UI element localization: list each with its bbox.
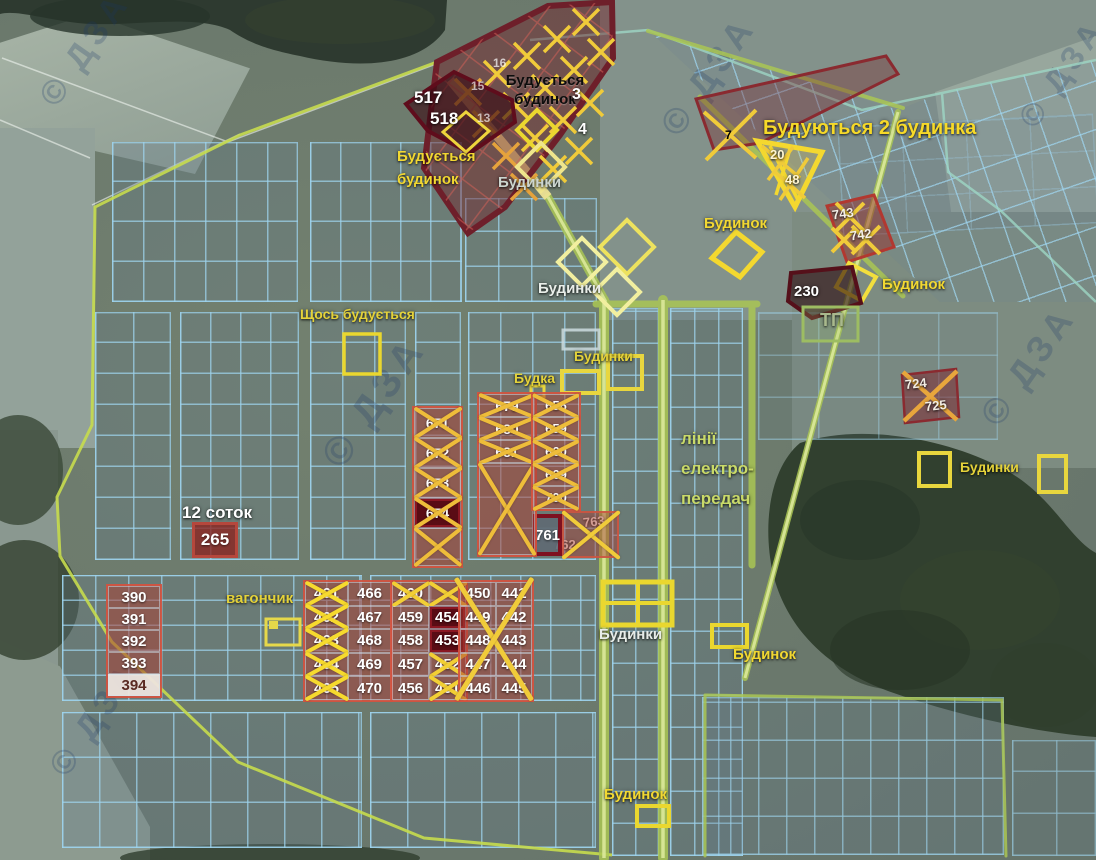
label-plot-724: 724 (904, 375, 927, 393)
label-517: 517 (414, 88, 442, 108)
plot-cell: 462 (305, 606, 348, 630)
plot-cell: 394 (108, 674, 160, 696)
label-budynky-top: Будинки (498, 174, 561, 192)
label-12-sotok: 12 соток (182, 503, 252, 523)
plot-cell: 456 (392, 676, 429, 700)
label-shchos-buduetsya: Щось будується (300, 306, 415, 323)
plot-cell: 669 (533, 463, 579, 486)
plot-761: 761 (533, 514, 562, 556)
plot-cell: 465 (305, 676, 348, 700)
label-budynok-mid: Будинок (733, 646, 796, 664)
plot-cell: 458 (392, 629, 429, 653)
label-plot-13: 13 (477, 111, 490, 125)
plot-cell: 681 (479, 440, 535, 463)
plot-cell: 466 (348, 582, 391, 606)
label-vagonchyk: вагончик (226, 590, 293, 608)
label-plot-48: 48 (785, 172, 799, 188)
x-over-441-450 (456, 578, 532, 700)
label-buduetsya-budynok-yellow: Будується будинок (397, 146, 476, 191)
plot-cell: 672 (414, 438, 461, 468)
label-budynky-mid: Будинки (574, 348, 633, 365)
label-budynky-diamonds: Будинки (538, 280, 601, 298)
plot-cell: 469 (348, 653, 391, 677)
label-budynok-bottom: Будинок (604, 786, 667, 804)
plot-cell: 467 (348, 606, 391, 630)
plots-671-674: 671672673674 (412, 406, 463, 568)
label-plot-15: 15 (471, 79, 484, 93)
plots-679-681: 679680681 (477, 392, 537, 557)
label-budynok-ne: Будинок (704, 215, 767, 233)
plots-461-470: 461466462467463468464469465470 (303, 580, 393, 702)
annotation-layer: Будується будинок517518Будується будинок… (0, 0, 1096, 860)
plot-cell: 393 (108, 652, 160, 674)
plot-265: 265 (192, 522, 238, 558)
label-plot-743: 743 (831, 205, 855, 223)
plot-cell (414, 528, 461, 566)
label-plot-4: 4 (578, 120, 587, 139)
label-budynok-ne2: Будинок (882, 276, 945, 294)
plot-cell: 464 (305, 653, 348, 677)
label-budka: Будка (514, 370, 555, 387)
plot-cell: 457 (392, 653, 429, 677)
label-plot-20: 20 (770, 147, 784, 163)
label-plot-742: 742 (849, 226, 873, 244)
plot-cell: 463 (305, 629, 348, 653)
plot-cell: 390 (108, 586, 160, 608)
plot-cell: 700 (533, 486, 579, 509)
plot-cell: 679 (479, 394, 535, 417)
plot-cell: 673 (414, 468, 461, 498)
plot-cell (479, 463, 535, 555)
plot-cell: 659 (533, 417, 579, 440)
plot-cell: 680 (479, 417, 535, 440)
label-plot-7: 7 (725, 128, 732, 142)
x-over-762-763 (562, 511, 619, 558)
plots-656-700: 656659660669700 (531, 392, 581, 511)
label-plot-230: 230 (794, 283, 819, 301)
label-tp: ТП (820, 310, 844, 332)
label-plot-3: 3 (572, 85, 581, 104)
plot-cell: 470 (348, 676, 391, 700)
plots-390-394: 390391392393394 (106, 584, 162, 698)
label-plot-725: 725 (924, 397, 947, 415)
plot-cell: 391 (108, 608, 160, 630)
map-image: © ДЗА © ДЗА © ДЗА © ДЗА © ДЗА © ДЗА (0, 0, 1096, 860)
label-power-lines: лінії електро- передач (681, 424, 754, 513)
plot-cell: 671 (414, 408, 461, 438)
label-518: 518 (430, 109, 458, 129)
plot-cell: 468 (348, 629, 391, 653)
plot-cell: 656 (533, 394, 579, 417)
plot-cell: 459 (392, 606, 429, 630)
plot-cell: 461 (305, 582, 348, 606)
label-budynky-right: Будинки (960, 459, 1019, 476)
label-plot-16: 16 (493, 56, 506, 70)
plot-cell: 660 (533, 440, 579, 463)
plot-cell: 674 (414, 498, 461, 528)
plot-cell: 392 (108, 630, 160, 652)
plot-cell: 460 (392, 582, 429, 606)
label-budynky-bottom: Будинки (599, 626, 662, 644)
label-buduyutsya-2-budynka: Будуються 2 будинка (763, 116, 976, 140)
